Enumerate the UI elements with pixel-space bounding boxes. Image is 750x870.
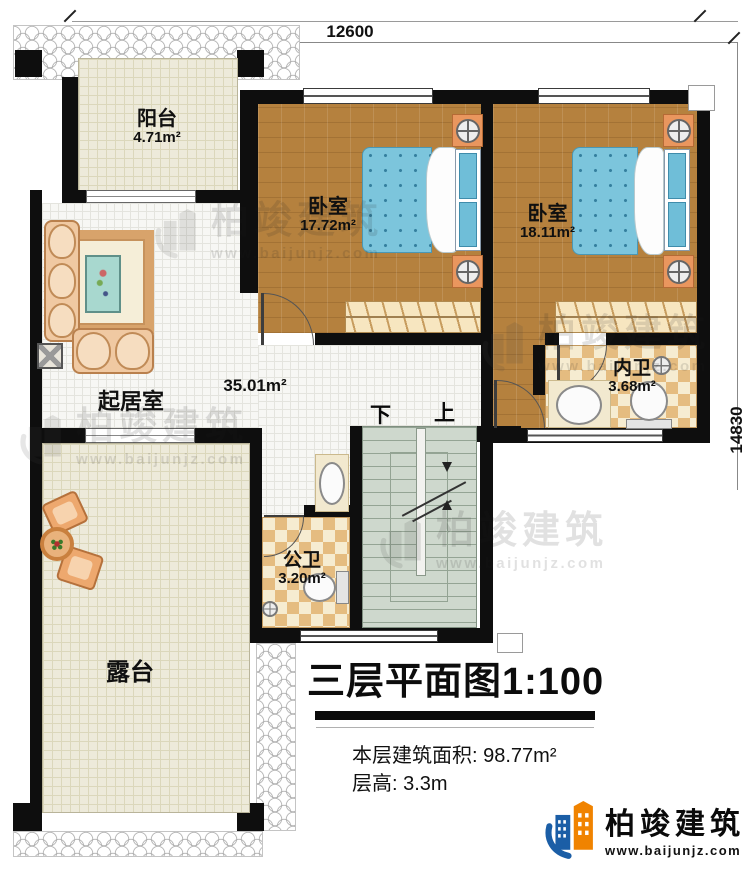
wall-terrace-right xyxy=(250,443,262,643)
sofa-cushion xyxy=(48,263,76,298)
headboard-cushion xyxy=(668,202,686,248)
room-area: 3.20m² xyxy=(264,571,340,588)
lamp-icon xyxy=(456,119,480,143)
chair-seat xyxy=(52,500,79,526)
side-table xyxy=(37,343,63,369)
lamp-icon xyxy=(667,260,691,284)
headboard-cushion xyxy=(459,153,477,199)
room-area: 4.71m² xyxy=(107,130,207,147)
wardrobe xyxy=(555,301,697,333)
wall-bedroom-left-bottom xyxy=(315,333,481,345)
sofa-cushion xyxy=(115,332,150,370)
room-name: 公卫 xyxy=(264,550,340,571)
stairs-arrow-up-icon xyxy=(442,500,452,510)
shower-head-icon xyxy=(262,601,278,617)
room-area-living: 35.01m² xyxy=(210,376,300,395)
lamp-icon xyxy=(456,260,480,284)
plan-title: 三层平面图1:100 xyxy=(307,650,604,705)
balcony-sliding-door xyxy=(86,190,196,203)
wall-left-outer xyxy=(30,190,42,831)
balcony-left-wall xyxy=(62,77,78,193)
chair-seat xyxy=(66,555,93,581)
dimension-line-top-outer xyxy=(72,21,738,22)
window-stairs xyxy=(300,630,438,642)
room-name: 阳台 xyxy=(107,108,207,130)
wall-stairs-stub-right xyxy=(477,426,521,442)
wall-inner-bath-top xyxy=(606,333,710,345)
room-label-balcony: 阳台 4.71m² xyxy=(107,108,207,147)
bed-headboard xyxy=(455,149,481,251)
wall-living-terrace xyxy=(42,428,85,443)
room-label-living: 起居室 xyxy=(71,390,191,415)
room-label-bedroom-left: 卧室 17.72m² xyxy=(268,196,388,235)
floor-height-line: 层高: 3.3m xyxy=(352,767,448,796)
room-label-terrace: 露台 xyxy=(98,660,162,687)
floor-area-label: 本层建筑面积: xyxy=(352,745,483,767)
floor-height-value: 3.3m xyxy=(403,773,447,795)
wall-stairs-right xyxy=(480,442,493,628)
sofa-cushion xyxy=(48,224,76,259)
headboard-cushion xyxy=(668,153,686,199)
room-name: 内卫 xyxy=(594,358,670,379)
sofa xyxy=(44,220,80,342)
floor-area-value: 98.77m² xyxy=(483,745,556,767)
wall-right-outer xyxy=(697,90,710,443)
wall xyxy=(62,190,86,203)
room-name: 卧室 xyxy=(490,203,605,225)
column xyxy=(15,50,42,77)
nightstand xyxy=(452,255,483,288)
brand-text: 柏竣建筑 www.baijunjz.com xyxy=(605,799,745,858)
stairs-up-label: 上 xyxy=(434,397,455,427)
bed-headboard xyxy=(664,149,690,251)
headboard-cushion xyxy=(459,202,477,248)
brand-website: www.baijunjz.com xyxy=(605,843,745,858)
room-area: 18.11m² xyxy=(490,225,605,242)
wall-inner-bath-top xyxy=(545,333,559,345)
title-underline-bar xyxy=(315,711,595,720)
terrace-sliding-door xyxy=(85,428,195,443)
window-bedroom-left xyxy=(303,88,433,104)
exterior-detail xyxy=(688,85,715,111)
floor-area-line: 本层建筑面积: 98.77m² xyxy=(352,739,557,768)
wall-inner-bath-left xyxy=(533,345,545,395)
stairs-down-label: 下 xyxy=(370,399,391,429)
room-name: 卧室 xyxy=(268,196,388,218)
nightstand xyxy=(663,114,694,147)
wardrobe xyxy=(345,301,481,333)
floor-plan: 12600 14830 阳台 4.71m² xyxy=(0,0,750,870)
roof-hatch-terrace-bottom xyxy=(13,831,263,857)
wall-bedroom-left-side xyxy=(240,90,258,293)
column xyxy=(237,50,264,77)
dimension-label-top: 12600 xyxy=(300,22,400,42)
room-area: 17.72m² xyxy=(268,218,388,235)
window-bedroom-right xyxy=(538,88,650,104)
stairs-arrow-down-icon xyxy=(442,462,452,472)
room-label-inner-bathroom: 内卫 3.68m² xyxy=(594,358,670,396)
room-label-bedroom-right: 卧室 18.11m² xyxy=(490,203,605,242)
nightstand xyxy=(452,114,483,147)
room-label-public-bathroom: 公卫 3.20m² xyxy=(264,550,340,588)
room-area: 3.68m² xyxy=(594,379,670,396)
terrace-table xyxy=(40,527,74,561)
coffee-table xyxy=(85,255,121,313)
dimension-label-right: 14830 xyxy=(727,390,747,470)
title-underline-thin xyxy=(316,727,594,728)
sofa xyxy=(72,328,154,374)
wall-living-terrace xyxy=(195,428,262,443)
bed-blanket xyxy=(426,147,458,253)
brand-logo: 柏竣建筑 www.baijunjz.com xyxy=(545,792,745,864)
sofa-cushion xyxy=(76,332,111,370)
wall-stairs-left xyxy=(350,426,362,643)
window-inner-bathroom xyxy=(527,429,663,442)
brand-name: 柏竣建筑 xyxy=(605,799,745,843)
brand-logo-icon xyxy=(545,795,599,861)
lamp-icon xyxy=(667,119,691,143)
nightstand xyxy=(663,255,694,288)
bed-blanket xyxy=(634,147,664,255)
wash-basin xyxy=(319,462,345,505)
floor-height-label: 层高: xyxy=(352,773,403,795)
